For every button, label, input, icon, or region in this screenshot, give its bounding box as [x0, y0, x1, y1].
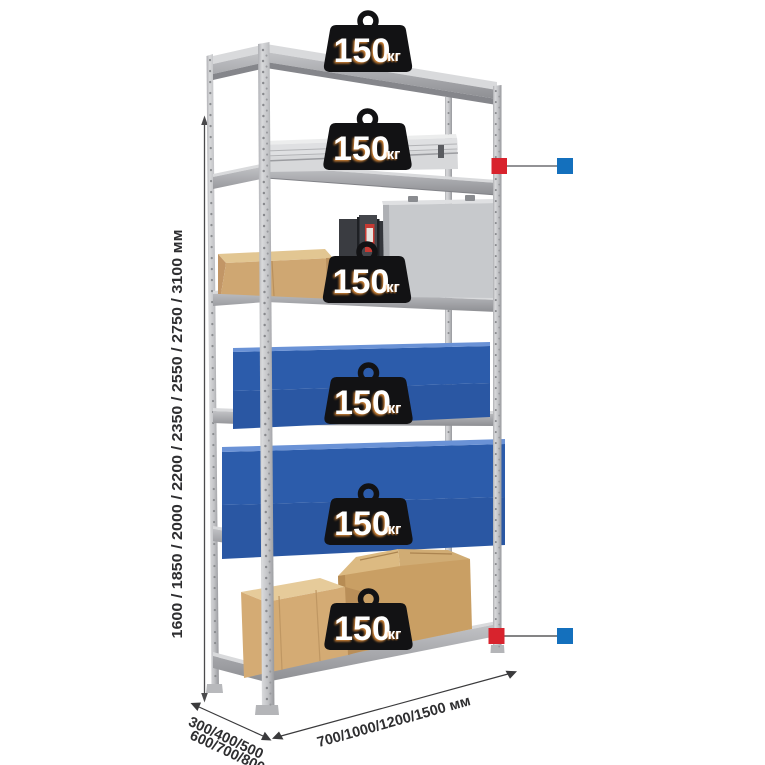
svg-text:1600 / 1850 / 2000 / 2200 / 23: 1600 / 1850 / 2000 / 2200 / 2350 / 2550 …: [170, 230, 186, 639]
